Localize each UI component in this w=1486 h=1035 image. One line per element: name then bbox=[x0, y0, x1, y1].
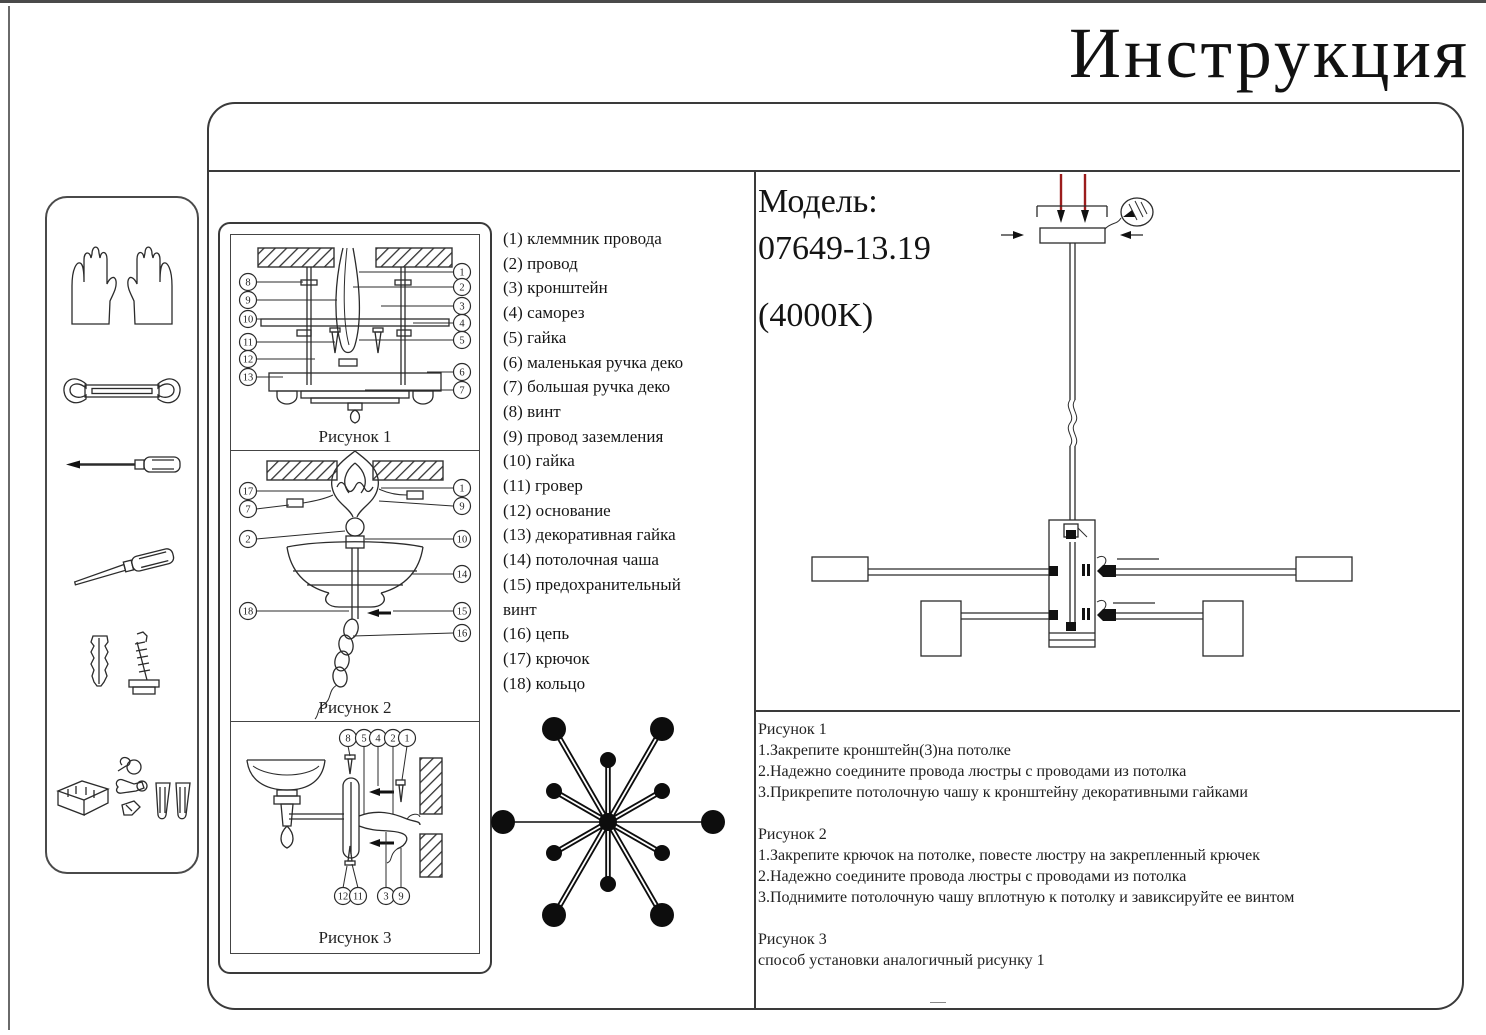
figure3-caption: Рисунок 3 bbox=[231, 928, 479, 948]
part-item: (14) потолочная чаша bbox=[503, 548, 711, 573]
part-item: (8) винт bbox=[503, 400, 711, 425]
instruction-step: 2.Надежно соедините провода люстры с про… bbox=[758, 866, 1448, 887]
svg-text:1: 1 bbox=[459, 484, 464, 495]
page-left-border bbox=[8, 6, 10, 1030]
instruction-step: способ установки аналогичный рисунку 1 bbox=[758, 950, 1448, 971]
svg-text:9: 9 bbox=[459, 502, 464, 513]
svg-text:5: 5 bbox=[361, 734, 366, 745]
instruction-step: 1.Закрепите кронштейн(3)на потолке bbox=[758, 740, 1448, 761]
awl-icon bbox=[47, 530, 197, 600]
instructions-fig3-title: Рисунок 3 bbox=[758, 929, 1448, 950]
part-item: (15) предохранительный винт bbox=[503, 573, 711, 622]
svg-text:15: 15 bbox=[457, 607, 468, 618]
svg-text:17: 17 bbox=[243, 487, 254, 498]
svg-text:3: 3 bbox=[459, 302, 464, 313]
figure2-panel: 17 7 2 18 1 9 10 14 15 16 Рисунок 2 bbox=[230, 450, 480, 724]
gloves-icon bbox=[47, 238, 197, 326]
part-item: (10) гайка bbox=[503, 449, 711, 474]
svg-text:18: 18 bbox=[243, 607, 254, 618]
instruction-step: 1.Закрепите крючок на потолке, повесте л… bbox=[758, 845, 1448, 866]
part-item: (4) саморез bbox=[503, 301, 711, 326]
svg-text:3: 3 bbox=[383, 892, 388, 903]
svg-text:2: 2 bbox=[459, 283, 464, 294]
tools-sidebar bbox=[45, 196, 199, 874]
instructions-fig1-title: Рисунок 1 bbox=[758, 719, 1448, 740]
instructions-fig3: Рисунок 3 способ установки аналогичный р… bbox=[758, 929, 1448, 971]
svg-text:4: 4 bbox=[375, 734, 381, 745]
svg-text:6: 6 bbox=[459, 368, 464, 379]
figure2-drawing: 17 7 2 18 1 9 10 14 15 16 bbox=[231, 451, 479, 723]
svg-text:13: 13 bbox=[243, 373, 254, 384]
parts-list: (1) клеммник провода (2) провод (3) крон… bbox=[503, 227, 711, 696]
part-item: (12) основание bbox=[503, 499, 711, 524]
screwdriver-icon bbox=[47, 451, 197, 479]
page-top-border bbox=[0, 0, 1486, 3]
instructions-fig1: Рисунок 1 1.Закрепите кронштейн(3)на пот… bbox=[758, 719, 1448, 803]
assembly-instructions: Рисунок 1 1.Закрепите кронштейн(3)на пот… bbox=[758, 719, 1448, 992]
chandelier-drawing bbox=[755, 172, 1462, 710]
svg-text:1: 1 bbox=[459, 268, 464, 279]
part-item: (5) гайка bbox=[503, 326, 711, 351]
figure1-caption: Рисунок 1 bbox=[231, 427, 479, 447]
svg-text:2: 2 bbox=[390, 734, 395, 745]
instruction-step: 2.Надежно соедините провода люстры с про… bbox=[758, 761, 1448, 782]
wrench-icon bbox=[47, 370, 197, 412]
instruction-step: 3.Поднимите потолочную чашу вплотную к п… bbox=[758, 887, 1448, 908]
hardware-set-icon bbox=[47, 753, 197, 837]
footer-mark bbox=[930, 1002, 946, 1003]
figure3-drawing: 8 5 4 2 1 12 11 3 9 bbox=[231, 722, 479, 953]
part-item: (3) кронштейн bbox=[503, 276, 711, 301]
svg-text:12: 12 bbox=[338, 892, 349, 903]
part-item: (11) гровер bbox=[503, 474, 711, 499]
part-item: (2) провод bbox=[503, 252, 711, 277]
part-item: (9) провод заземления bbox=[503, 425, 711, 450]
figure3-panel: 8 5 4 2 1 12 11 3 9 Рисунок 3 bbox=[230, 721, 480, 954]
page-title: Инструкция bbox=[1069, 12, 1470, 95]
part-item: (16) цепь bbox=[503, 622, 711, 647]
divider-right bbox=[756, 710, 1460, 712]
svg-text:8: 8 bbox=[345, 734, 350, 745]
figure1-panel: 8 9 10 11 12 13 1 2 3 4 5 6 7 Рисунок 1 bbox=[230, 234, 480, 453]
svg-text:16: 16 bbox=[457, 629, 468, 640]
instructions-fig2: Рисунок 2 1.Закрепите крючок на потолке,… bbox=[758, 824, 1448, 908]
svg-text:5: 5 bbox=[459, 336, 464, 347]
svg-text:14: 14 bbox=[457, 570, 468, 581]
svg-text:11: 11 bbox=[243, 338, 253, 349]
part-item: (7) большая ручка деко bbox=[503, 375, 711, 400]
svg-text:1: 1 bbox=[404, 734, 409, 745]
sputnik-chandelier-icon bbox=[490, 702, 730, 947]
part-item: (18) кольцо bbox=[503, 672, 711, 697]
part-item: (13) декоративная гайка bbox=[503, 523, 711, 548]
svg-text:10: 10 bbox=[243, 315, 254, 326]
svg-text:2: 2 bbox=[245, 535, 250, 546]
part-item: (6) маленькая ручка деко bbox=[503, 351, 711, 376]
svg-text:8: 8 bbox=[245, 278, 250, 289]
svg-text:11: 11 bbox=[353, 892, 363, 903]
figures-box: 8 9 10 11 12 13 1 2 3 4 5 6 7 Рисунок 1 bbox=[218, 222, 492, 974]
svg-text:9: 9 bbox=[245, 296, 250, 307]
figure2-caption: Рисунок 2 bbox=[231, 698, 479, 718]
dowel-and-screw-icon bbox=[47, 628, 197, 704]
part-item: (1) клеммник провода bbox=[503, 227, 711, 252]
instruction-step: 3.Прикрепите потолочную чашу к кронштейн… bbox=[758, 782, 1448, 803]
svg-text:7: 7 bbox=[459, 386, 464, 397]
svg-text:12: 12 bbox=[243, 355, 254, 366]
part-item: (17) крючок bbox=[503, 647, 711, 672]
instructions-fig2-title: Рисунок 2 bbox=[758, 824, 1448, 845]
svg-text:9: 9 bbox=[398, 892, 403, 903]
svg-text:7: 7 bbox=[245, 505, 250, 516]
svg-text:10: 10 bbox=[457, 535, 468, 546]
figure1-drawing: 8 9 10 11 12 13 1 2 3 4 5 6 7 bbox=[231, 235, 479, 452]
svg-text:4: 4 bbox=[459, 319, 465, 330]
